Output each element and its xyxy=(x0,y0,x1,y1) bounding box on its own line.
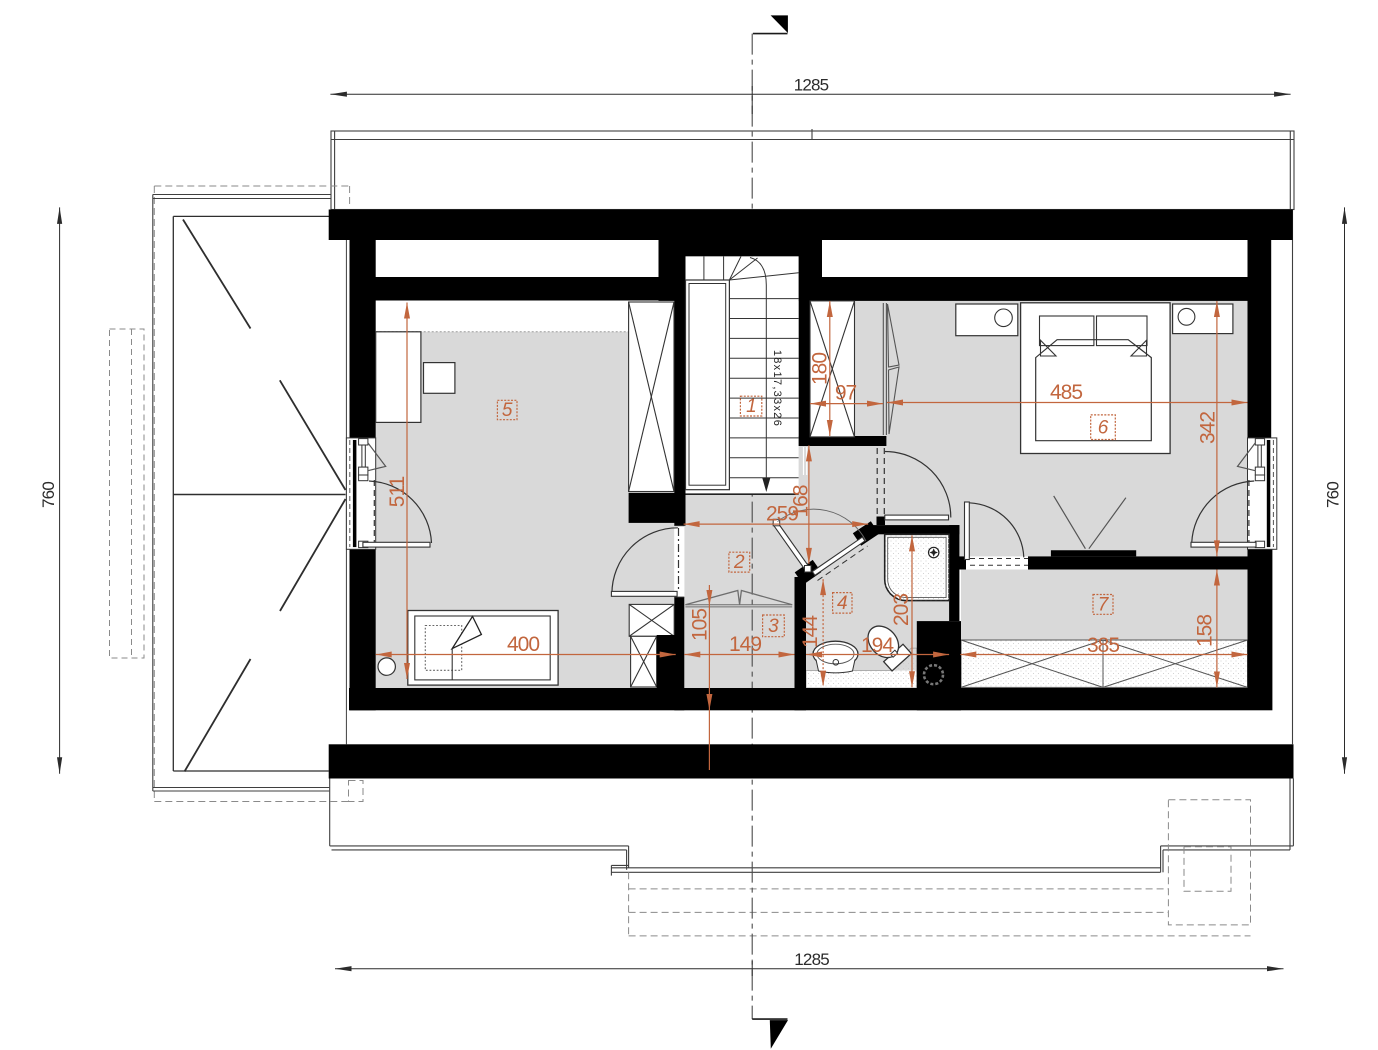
svg-text:18x17,33x26: 18x17,33x26 xyxy=(771,350,783,427)
svg-text:3: 3 xyxy=(768,616,779,637)
svg-text:511: 511 xyxy=(386,476,409,507)
svg-text:2: 2 xyxy=(733,552,745,573)
svg-text:4: 4 xyxy=(837,593,848,614)
svg-text:485: 485 xyxy=(1050,381,1082,404)
svg-text:342: 342 xyxy=(1197,412,1220,444)
svg-text:158: 158 xyxy=(1194,615,1217,647)
svg-text:203: 203 xyxy=(890,594,913,626)
svg-text:400: 400 xyxy=(507,633,539,656)
svg-text:6: 6 xyxy=(1098,418,1109,439)
svg-text:7: 7 xyxy=(1098,595,1110,616)
svg-text:760: 760 xyxy=(1324,482,1343,508)
svg-text:5: 5 xyxy=(502,400,513,421)
svg-text:180: 180 xyxy=(809,353,832,385)
svg-text:1285: 1285 xyxy=(794,950,829,969)
svg-text:105: 105 xyxy=(689,609,712,641)
svg-text:1285: 1285 xyxy=(794,76,829,95)
svg-text:1: 1 xyxy=(746,396,757,417)
svg-text:194: 194 xyxy=(861,634,894,657)
svg-text:760: 760 xyxy=(39,482,58,508)
svg-text:168: 168 xyxy=(790,485,813,517)
svg-text:385: 385 xyxy=(1087,634,1119,657)
svg-text:149: 149 xyxy=(729,633,761,656)
svg-text:144: 144 xyxy=(799,615,822,648)
svg-text:97: 97 xyxy=(835,382,857,405)
